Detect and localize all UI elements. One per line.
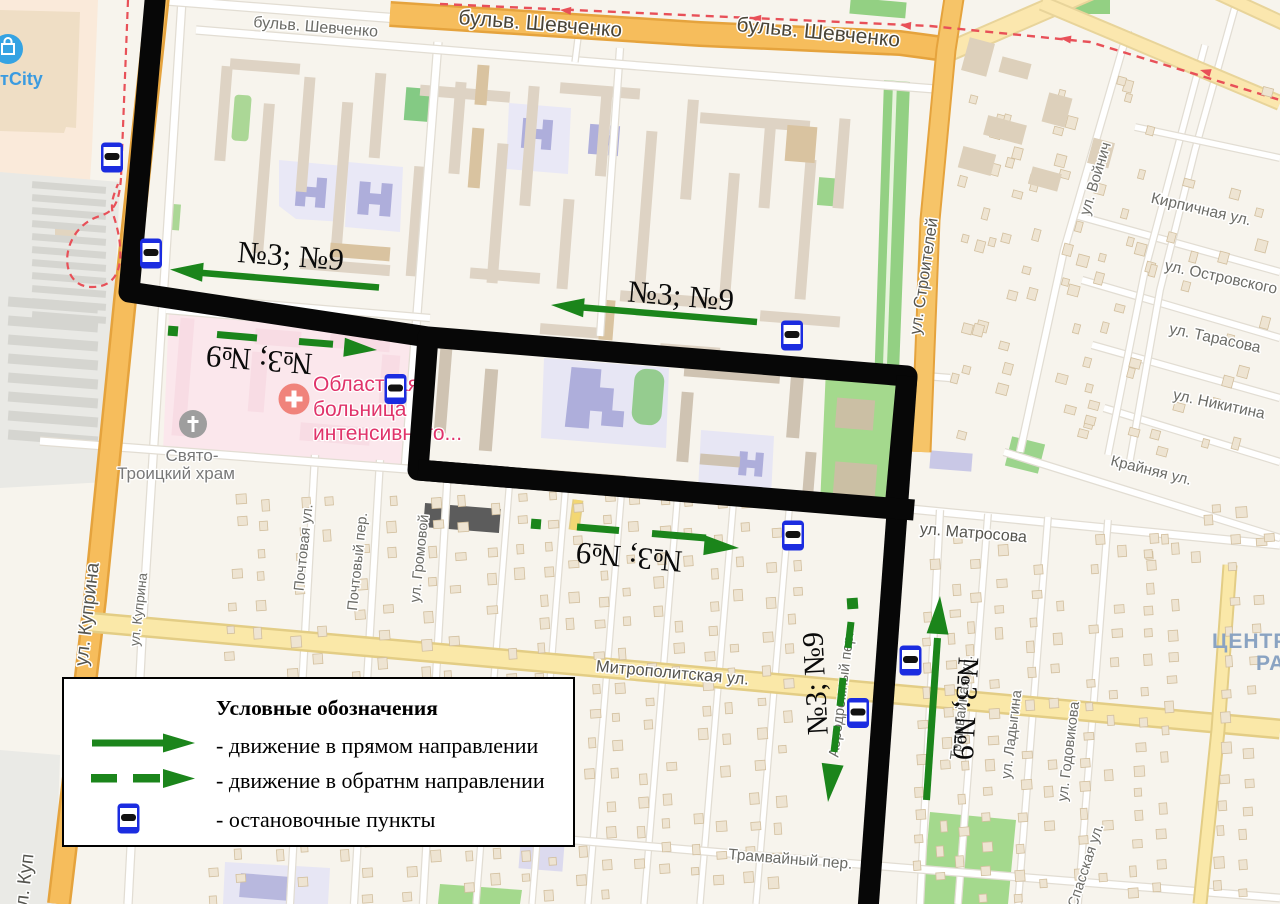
svg-text:Свято-: Свято- <box>165 446 218 465</box>
svg-text:- движение в прямом направлени: - движение в прямом направлении <box>216 733 539 758</box>
svg-text:№3; №9: №3; №9 <box>796 631 834 736</box>
svg-text:интенсивного...: интенсивного... <box>313 422 462 445</box>
svg-text:ЦЕНТРАЛЬН: ЦЕНТРАЛЬН <box>1212 630 1280 653</box>
svg-text:РАЙ: РАЙ <box>1256 651 1280 675</box>
svg-text:Условные обозначения: Условные обозначения <box>216 696 438 720</box>
svg-text:тCity: тCity <box>0 69 43 89</box>
svg-text:- остановочные пункты: - остановочные пункты <box>216 807 436 832</box>
svg-text:Троицкий храм: Троицкий храм <box>117 464 235 483</box>
svg-text:- движение в обратнм направлен: - движение в обратнм направлении <box>216 768 545 793</box>
svg-text:№3; №9: №3; №9 <box>946 656 984 761</box>
